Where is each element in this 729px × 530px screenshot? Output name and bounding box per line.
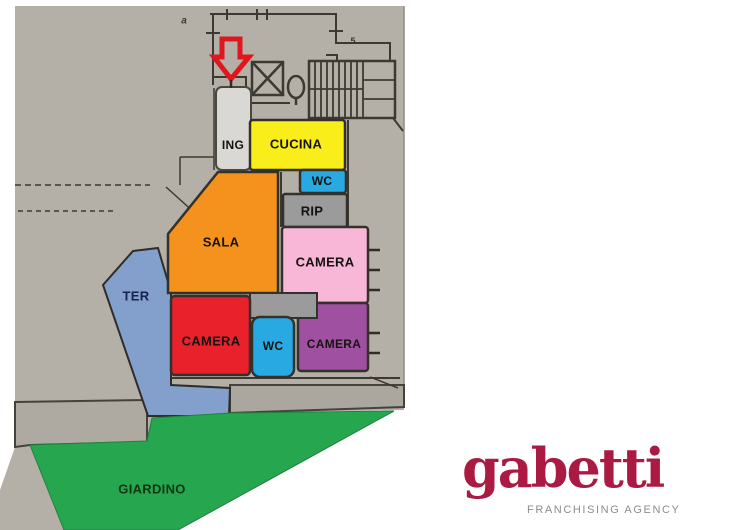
lower-left-block bbox=[15, 400, 147, 447]
label-ing: ING bbox=[222, 138, 244, 152]
label-wc-bottom: WC bbox=[263, 339, 284, 353]
label-rip: RIP bbox=[301, 204, 324, 219]
gabetti-logo: gabetti bbox=[462, 441, 663, 495]
floorplan-page: a 5 ING CUCINA WC RIP SALA CAMERA TER CA… bbox=[0, 0, 729, 530]
plan-letter-a: a bbox=[181, 16, 187, 27]
label-cucina: CUCINA bbox=[270, 137, 322, 152]
room-ing bbox=[216, 87, 251, 170]
lower-right-strip bbox=[230, 385, 404, 413]
label-camera-red: CAMERA bbox=[182, 334, 241, 349]
gabetti-tagline: FRANCHISING AGENCY bbox=[527, 504, 681, 516]
label-ter: TER bbox=[123, 289, 150, 304]
label-wc-top: WC bbox=[312, 174, 333, 188]
label-camera-pink: CAMERA bbox=[296, 255, 355, 270]
label-camera-purple: CAMERA bbox=[307, 337, 361, 351]
label-sala: SALA bbox=[203, 235, 240, 250]
label-giardino: GIARDINO bbox=[118, 482, 185, 497]
plan-number-5: 5 bbox=[350, 36, 355, 46]
hallway bbox=[250, 293, 317, 318]
